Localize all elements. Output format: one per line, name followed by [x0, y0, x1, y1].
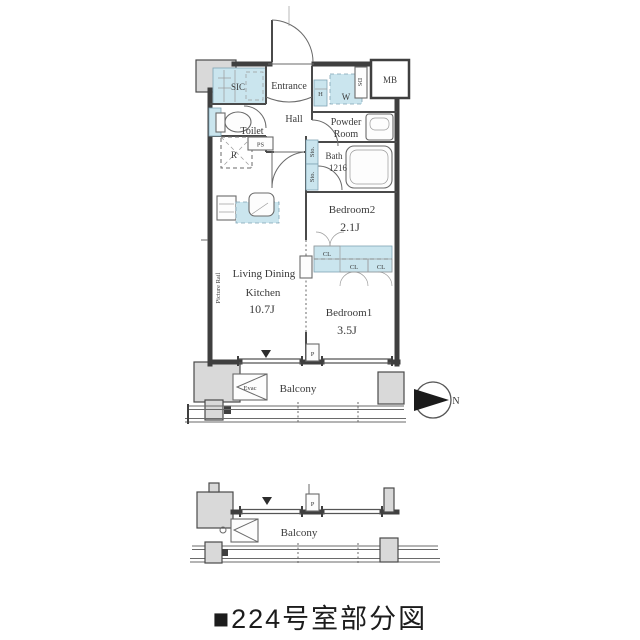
closet-label-1: CL	[323, 251, 331, 258]
bedroom-closets	[314, 232, 392, 286]
bedroom2-size-label: 2.1J	[340, 220, 360, 234]
fridge-space	[221, 137, 273, 168]
north-arrow-icon	[414, 389, 449, 411]
washer-label: W	[342, 92, 351, 102]
bath-label: Bath	[326, 151, 343, 161]
entrance-label: Entrance	[271, 81, 307, 92]
duct-space-label: DS	[356, 78, 363, 87]
pillar-label-main: P	[311, 351, 315, 358]
storage-lower-label: Sto.	[309, 171, 316, 182]
plan-caption: ■224号室部分図	[0, 597, 640, 636]
bedroom1-label: Bedroom1	[326, 307, 372, 319]
compass	[414, 382, 451, 418]
washbasin	[366, 114, 393, 140]
hall-label: Hall	[285, 114, 302, 125]
floor-plan-drawing: SIC Entrance H W DS MB Toilet Hall Powde…	[0, 0, 640, 640]
storage-upper-label: Sto.	[309, 146, 316, 157]
meter-box-label: MB	[383, 75, 397, 85]
closet-label-3: CL	[377, 264, 385, 271]
bedroom2-label: Bedroom2	[329, 204, 375, 216]
compass-north-label: N	[452, 396, 459, 407]
kitchen-counter	[217, 193, 279, 223]
evac-hatch-label: Evac	[244, 385, 257, 392]
lower-plan-structure	[197, 483, 397, 528]
balcony-label-main: Balcony	[280, 383, 317, 395]
sic-label: SIC	[231, 82, 245, 92]
hanger-box-label: H	[318, 91, 323, 98]
floor-plan-page: SIC Entrance H W DS MB Toilet Hall Powde…	[0, 0, 640, 640]
ldk-label-line2: Kitchen	[246, 287, 281, 299]
powder-room-label-line1: Powder	[331, 117, 362, 128]
balcony-label-lower: Balcony	[281, 527, 318, 539]
fridge-space-label: R	[231, 150, 237, 160]
toilet-label: Toilet	[240, 126, 263, 137]
pipe-space-label: PS	[257, 142, 265, 149]
pillar-label-lower: P	[311, 501, 315, 508]
entrance-door	[268, 6, 314, 64]
ldk-size-label: 10.7J	[249, 302, 275, 316]
ldk-label-line1: Living Dining	[233, 268, 296, 280]
bedroom1-size-label: 3.5J	[337, 323, 357, 337]
picture-rail-label: Picture Rail	[215, 272, 222, 303]
closet-label-2: CL	[350, 264, 358, 271]
bath-size-label: 1216	[329, 163, 348, 173]
powder-room-label-line2: Room	[334, 129, 359, 140]
bathtub	[346, 146, 392, 188]
